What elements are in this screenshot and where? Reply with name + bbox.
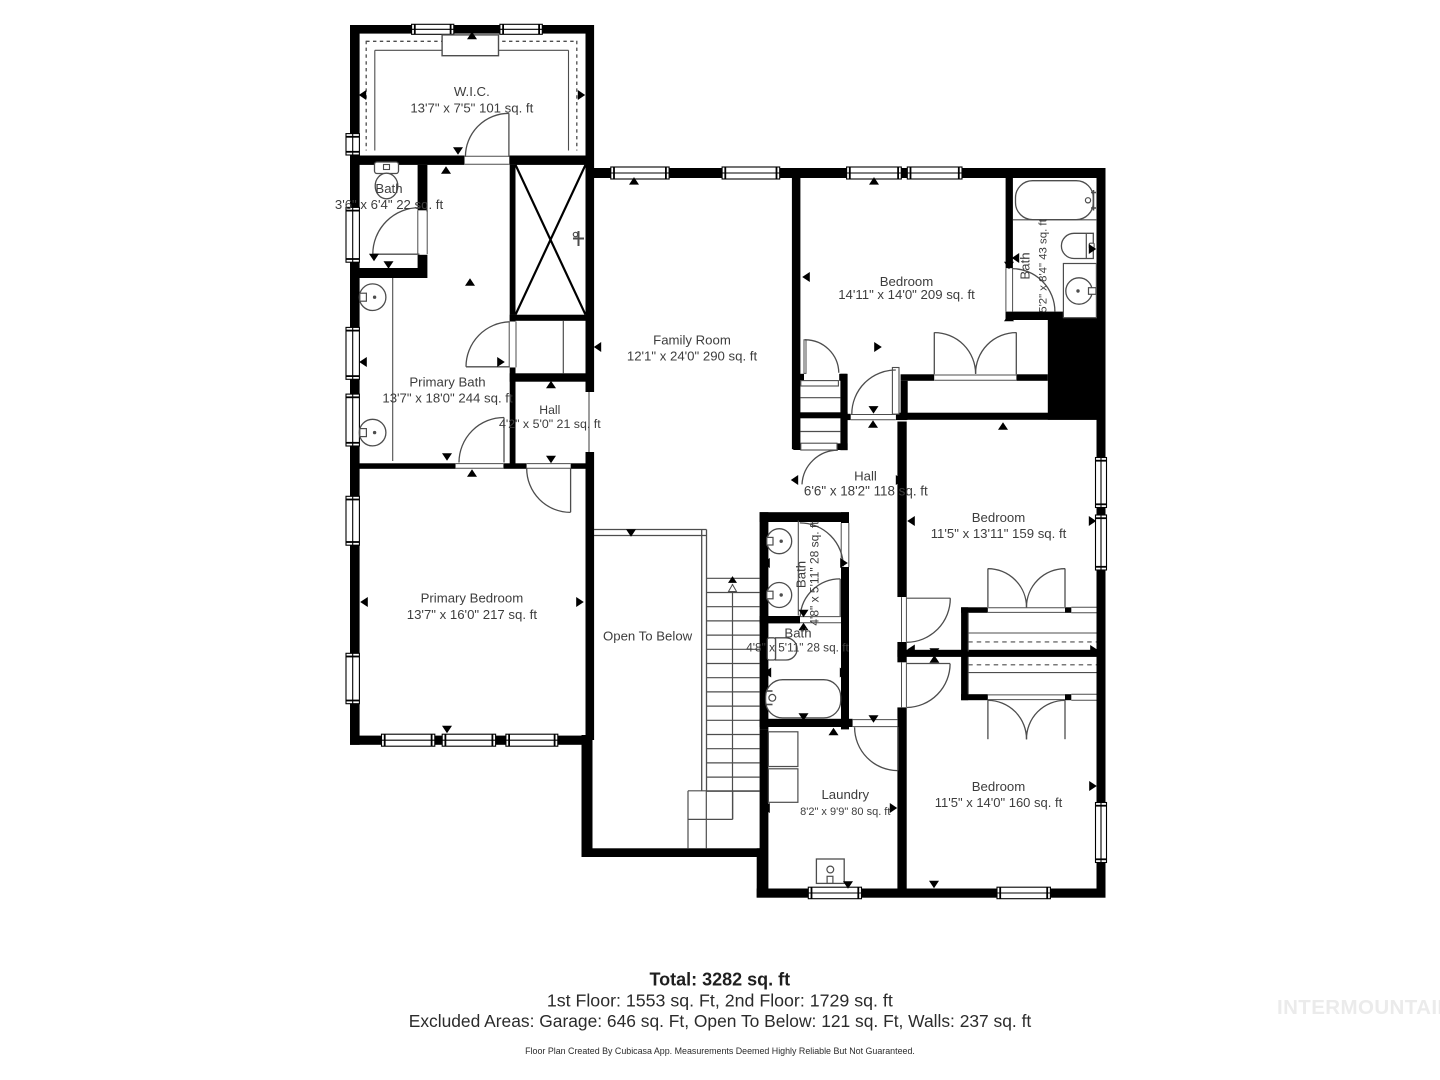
- svg-text:Bedroom: Bedroom: [972, 510, 1026, 525]
- svg-text:4'8" x 5'11" 28 sq. ft: 4'8" x 5'11" 28 sq. ft: [746, 640, 849, 654]
- svg-text:Bedroom: Bedroom: [972, 779, 1026, 794]
- svg-text:13'7" x 18'0" 244 sq. ft: 13'7" x 18'0" 244 sq. ft: [382, 391, 513, 406]
- svg-text:Family Room: Family Room: [653, 332, 731, 347]
- svg-text:8'2" x 9'9" 80 sq. ft: 8'2" x 9'9" 80 sq. ft: [800, 806, 890, 818]
- svg-text:11'5" x 13'11" 159 sq. ft: 11'5" x 13'11" 159 sq. ft: [931, 526, 1067, 541]
- svg-text:Laundry: Laundry: [821, 787, 869, 802]
- svg-text:Hall: Hall: [539, 403, 560, 417]
- svg-text:Floor Plan Created By Cubicasa: Floor Plan Created By Cubicasa App. Meas…: [525, 1046, 915, 1056]
- svg-text:INTERMOUNTAIN: INTERMOUNTAIN: [1277, 996, 1440, 1019]
- svg-text:6'6" x 18'2" 118 sq. ft: 6'6" x 18'2" 118 sq. ft: [804, 484, 928, 499]
- svg-text:W.I.C.: W.I.C.: [454, 84, 490, 99]
- svg-text:Bath: Bath: [784, 625, 811, 640]
- svg-text:12'1" x 24'0" 290 sq. ft: 12'1" x 24'0" 290 sq. ft: [627, 349, 758, 364]
- svg-text:5'2" x 8'4" 43 sq. ft: 5'2" x 8'4" 43 sq. ft: [1038, 218, 1050, 312]
- svg-text:Bath: Bath: [794, 561, 809, 588]
- svg-text:Open To Below: Open To Below: [603, 629, 693, 644]
- svg-text:3'6" x 6'4" 22 sq. ft: 3'6" x 6'4" 22 sq. ft: [335, 197, 444, 212]
- svg-text:Primary Bedroom: Primary Bedroom: [421, 591, 524, 606]
- svg-text:Bath: Bath: [1018, 252, 1033, 279]
- svg-text:4'8" x 5'11" 28 sq. ft: 4'8" x 5'11" 28 sq. ft: [808, 521, 822, 626]
- svg-text:1st Floor: 1553 sq. Ft, 2nd Fl: 1st Floor: 1553 sq. Ft, 2nd Floor: 1729 …: [547, 990, 893, 1010]
- svg-text:11'5" x 14'0" 160 sq. ft: 11'5" x 14'0" 160 sq. ft: [935, 795, 1063, 810]
- svg-text:Primary Bath: Primary Bath: [409, 374, 485, 389]
- svg-text:Excluded Areas: Garage: 646 sq: Excluded Areas: Garage: 646 sq. Ft, Open…: [409, 1011, 1032, 1031]
- svg-text:13'7" x 16'0" 217 sq. ft: 13'7" x 16'0" 217 sq. ft: [407, 607, 538, 622]
- svg-text:4'2" x 5'0" 21 sq. ft: 4'2" x 5'0" 21 sq. ft: [499, 417, 601, 431]
- svg-text:14'11" x 14'0" 209 sq. ft: 14'11" x 14'0" 209 sq. ft: [838, 287, 975, 302]
- svg-text:Hall: Hall: [854, 469, 877, 484]
- svg-text:Total: 3282 sq. ft: Total: 3282 sq. ft: [649, 969, 790, 989]
- svg-text:Bath: Bath: [375, 181, 402, 196]
- svg-text:13'7" x 7'5" 101 sq. ft: 13'7" x 7'5" 101 sq. ft: [410, 101, 533, 116]
